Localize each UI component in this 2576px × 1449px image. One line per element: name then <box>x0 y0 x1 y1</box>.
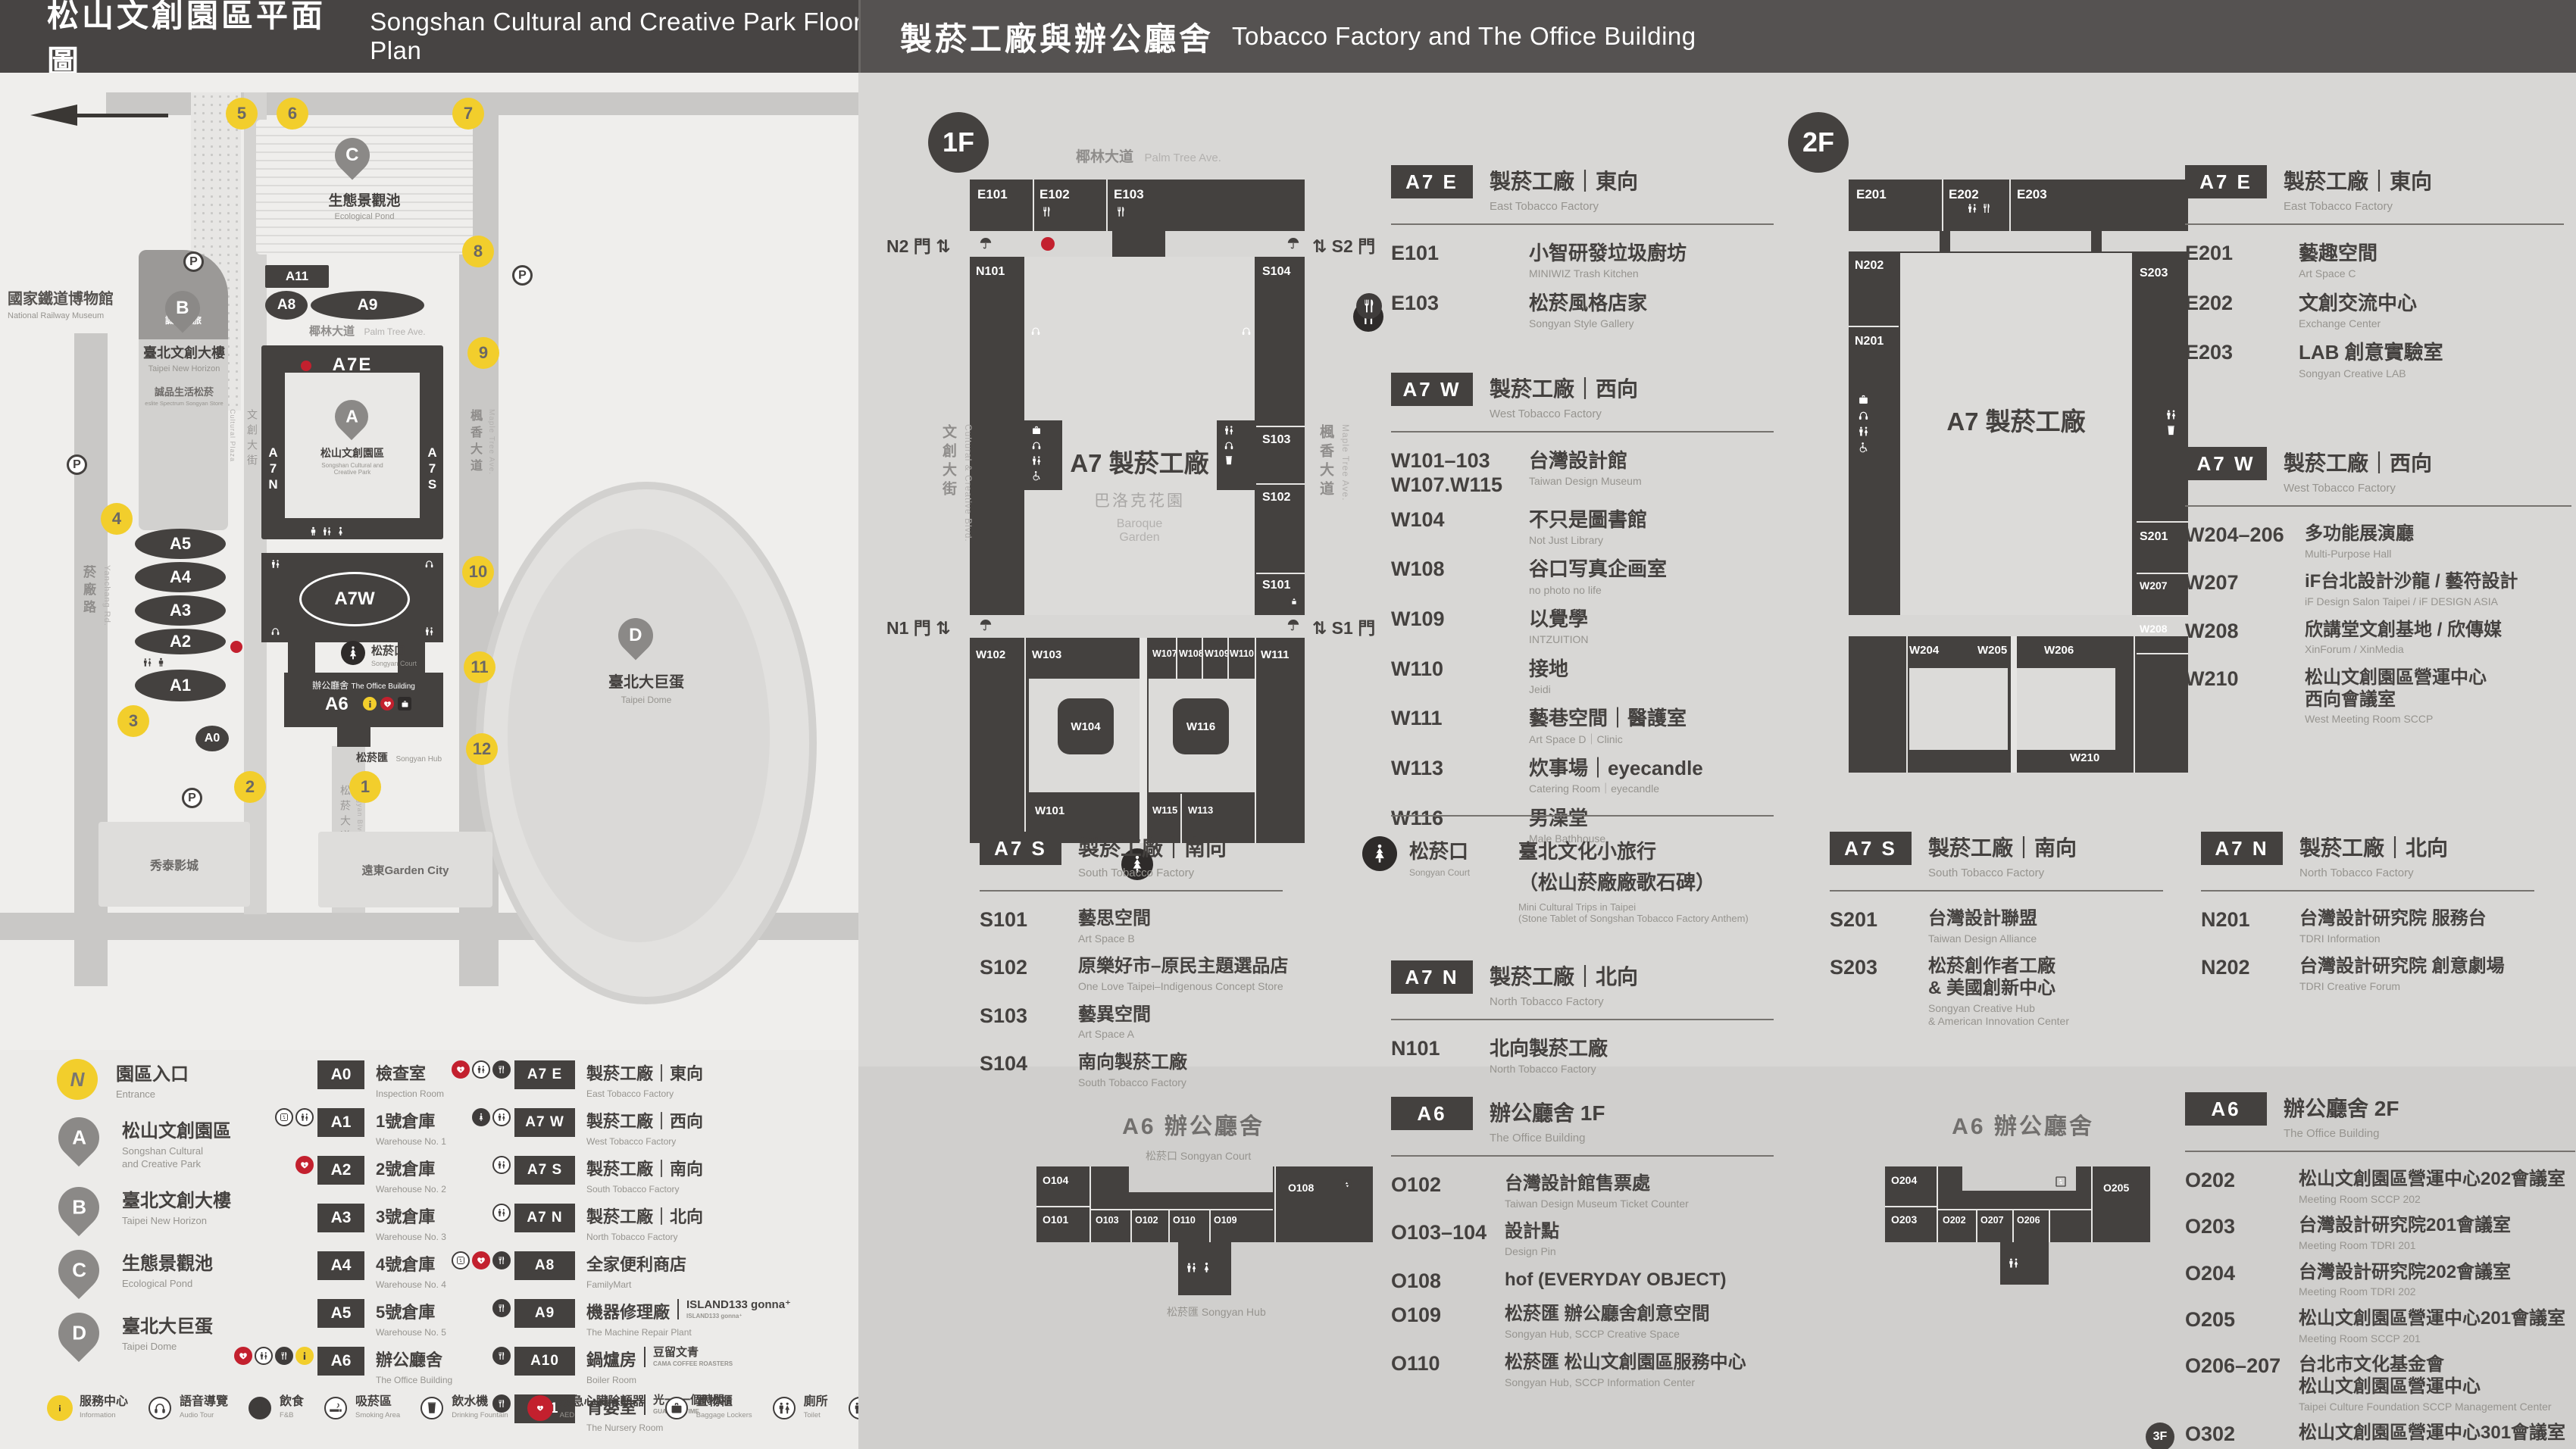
f2-east-icons <box>2165 409 2177 436</box>
f2-w207: W207 <box>2140 579 2168 592</box>
legend-row: A3 3號倉庫 Warehouse No. 3 <box>229 1204 456 1242</box>
f1-n101: N101 <box>976 265 1005 279</box>
fork-icon <box>249 1397 271 1419</box>
a6f1-hub-label: 松菸匯 Songyan Hub <box>1167 1304 1266 1319</box>
aed-icon <box>301 361 311 371</box>
room-row: E202 文創交流中心Exchange Center <box>2185 292 2564 331</box>
f2-n201: N201 <box>1855 335 1884 348</box>
gate-8: 8 <box>462 236 494 267</box>
fork-icon <box>492 1347 511 1365</box>
gate-4: 4 <box>101 503 133 535</box>
section-badge: A6 <box>1391 1097 1473 1130</box>
a6f2-o206: O206 <box>2017 1215 2040 1226</box>
f1-w108: W108 <box>1179 648 1204 659</box>
section-a6-2f: A6 辦公廳舍 2FThe Office Building O202 松山文創園… <box>2185 1092 2575 1449</box>
room-row: S104 南向製菸工廠South Tobacco Factory <box>980 1052 1370 1089</box>
parking-icon: P <box>183 251 204 272</box>
building-a9: A9 <box>311 291 424 320</box>
parking-icon: P <box>182 788 202 808</box>
building-a3: A3 <box>135 595 226 626</box>
room-row: W109 以覺學INTZUITION <box>1391 607 1774 647</box>
legend-mark: B <box>50 1178 108 1235</box>
section-1f-court: 松菸口 Songyan Court 臺北文化小旅行 （松山菸廠廠歌石碑） Min… <box>1362 804 1787 924</box>
section-badge: A7 N <box>1391 960 1473 994</box>
legend-row: A7 W 製菸工廠｜西向 West Tobacco Factory <box>453 1108 855 1147</box>
section-2f-a7s: A7 S 製菸工廠｜南向South Tobacco Factory S201 台… <box>1830 832 2193 1039</box>
building-a0: A0 <box>195 726 229 751</box>
f2-e202: E202 <box>1949 187 1979 202</box>
room-row: S102 原樂好市–原民主題選品店One Love Taipei–Indigen… <box>980 956 1370 993</box>
hub-label: 松菸匯 Songyan Hub <box>356 750 442 765</box>
fork-icon <box>275 1347 293 1365</box>
aed-icon <box>234 1347 252 1365</box>
f1-s101: S101 <box>1262 579 1290 592</box>
room-row: O206–207 台北市文化基金會松山文創園區營運中心Taipei Cultur… <box>2185 1354 2575 1413</box>
room-row: N101 北向製菸工廠North Tobacco Factory <box>1391 1037 1774 1076</box>
umbrella-icon <box>979 618 993 632</box>
f2-w-court1 <box>1909 668 2008 750</box>
section-2f-a7w: A7 W 製菸工廠｜西向West Tobacco Factory W204–20… <box>2185 447 2571 737</box>
showtimes-label: 秀泰影城 <box>98 855 250 873</box>
legend-pin-row: B 臺北文創大樓 Taipei New Horizon <box>57 1185 231 1234</box>
facility-item: 飲食 F&B <box>247 1395 304 1421</box>
a6f1-court-label: 松菸口 Songyan Court <box>1146 1148 1251 1163</box>
a6f2-o205: O205 <box>2103 1182 2129 1194</box>
f2-w206: W206 <box>2044 644 2074 657</box>
aed-icon <box>295 1156 314 1174</box>
section-badge: A7 S <box>1830 832 1912 865</box>
taipei-dome: D 臺北大巨蛋 Taipei Dome <box>476 482 817 1004</box>
a6f2-o202: O202 <box>1943 1215 1966 1226</box>
f1-w103: W103 <box>1032 648 1061 661</box>
room-row: W204–206 多功能展演廳Multi-Purpose Hall <box>2185 523 2571 561</box>
room-row: E201 藝趣空間Art Space C <box>2185 242 2564 281</box>
section-1f-a7e: A7 E 製菸工廠｜東向East Tobacco Factory E101 小智… <box>1391 165 1774 341</box>
pin-a: A <box>328 393 375 440</box>
room-row: 3F O302 松山文創園區營運中心301會議室Meeting Room SCC… <box>2185 1422 2575 1449</box>
page-title-right-zh: 製菸工廠與辦公廳舍 <box>900 14 1214 60</box>
audio-icon <box>1241 326 1252 336</box>
legend-pin-row: D 臺北大巨蛋 Taipei Dome <box>57 1311 231 1360</box>
floor-plan-poster: 松山文創園區平面圖 Songshan Cultural and Creative… <box>0 0 2576 1449</box>
f2-n202: N202 <box>1855 259 1884 273</box>
section-2f-a7n: A7 N 製菸工廠｜北向North Tobacco Factory N201 台… <box>2201 832 2572 1004</box>
a6f1-o110: O110 <box>1173 1215 1196 1226</box>
elevator-icon <box>2055 1176 2067 1188</box>
legend-mark: A <box>50 1109 108 1166</box>
facility-item: 服務中心 Information <box>47 1395 128 1421</box>
legend-pin-row: C 生態景觀池 Ecological Pond <box>57 1248 231 1297</box>
gate-s2-label: ⇅ S2 門 <box>1312 232 1375 258</box>
section-badge: A7 N <box>2201 832 2283 865</box>
audio-icon <box>148 1397 171 1419</box>
room-row: O109 松菸匯 辦公廳舍創意空間Songyan Hub, SCCP Creat… <box>1391 1304 1774 1341</box>
gate-12: 12 <box>466 733 498 765</box>
building-a11: A11 <box>265 265 329 288</box>
ecological-pond: C 生態景觀池 Ecological Pond <box>256 120 473 255</box>
yanchang-rd-label: 菸廠路 Yanchang Rd. <box>79 565 111 626</box>
legend-row: A7 N 製菸工廠｜北向 North Tobacco Factory <box>453 1204 855 1242</box>
brand-box: 豆留文青 CAMA COFFEE ROASTERS <box>644 1347 733 1367</box>
a6f1-entry <box>1178 1242 1231 1295</box>
f1-w102: W102 <box>976 648 1005 661</box>
a6f2-o203: O203 <box>1891 1213 1917 1226</box>
page-title-right-en: Tobacco Factory and The Office Building <box>1232 22 1696 51</box>
facility-item: 飲水機 Drinking Fountain <box>419 1395 508 1421</box>
umbrella-icon <box>1286 236 1300 250</box>
page-title-left-zh: 松山文創園區平面圖 <box>47 0 352 83</box>
park-label-zh: 松山文創園區 <box>285 445 420 461</box>
pair-icon <box>492 1156 511 1174</box>
f1-s102: S102 <box>1262 491 1290 504</box>
f2-e201: E201 <box>1856 187 1887 202</box>
room-row: W101–103W107.W115 台灣設計館Taiwan Design Mus… <box>1391 449 1774 498</box>
header-right: 製菸工廠與辦公廳舍 Tobacco Factory and The Office… <box>858 0 2576 73</box>
room-row: O102 台灣設計館售票處Taiwan Design Museum Ticket… <box>1391 1173 1774 1210</box>
umbrella-icon <box>979 236 993 250</box>
facility-item: 廁所 Toilet <box>771 1395 828 1421</box>
f2-center-label: A7 製菸工廠 <box>1900 401 2132 438</box>
legend-row: A7 E 製菸工廠｜東向 East Tobacco Factory <box>453 1060 855 1099</box>
room-row: O203 台灣設計研究院201會議室Meeting Room TDRI 201 <box>2185 1215 2575 1252</box>
legend-mark: C <box>50 1241 108 1298</box>
f1-w107: W107 <box>1152 648 1177 659</box>
f1-right-road-label: 楓香大道 Maple Tree Ave. <box>1315 424 1351 501</box>
a6-label: A6 <box>325 694 349 715</box>
pond-label-en: Ecological Pond <box>256 212 473 221</box>
building-a4: A4 <box>135 562 226 592</box>
elevator-icon <box>1288 595 1300 607</box>
gardencity-label: 遠東Garden City <box>318 862 492 878</box>
legend-pin-row: N 園區入口 Entrance <box>57 1059 231 1101</box>
legend-row: A5 5號倉庫 Warehouse No. 5 <box>229 1299 456 1338</box>
room-row: W104 不只是圖書館Not Just Library <box>1391 508 1774 548</box>
gate-1: 1 <box>349 771 381 803</box>
a6f1-o101: O101 <box>1043 1213 1068 1226</box>
court-label: 松菸口 Songyan Court <box>371 642 417 667</box>
aed-icon <box>1041 237 1055 251</box>
f1-s103: S103 <box>1262 433 1290 447</box>
gate-3: 3 <box>117 705 149 737</box>
building-a1: A1 <box>135 670 226 701</box>
aed-icon <box>472 1251 490 1269</box>
room-row: O110 松菸匯 松山文創園區服務中心Songyan Hub, SCCP Inf… <box>1391 1352 1774 1389</box>
a6f2-o204: O204 <box>1891 1174 1917 1186</box>
legend-row: A4 4號倉庫 Warehouse No. 4 <box>229 1251 456 1290</box>
fork-icon <box>492 1060 511 1079</box>
f2-west-icons <box>1858 394 1869 453</box>
room-row: W207 iF台北設計沙龍 / 藝符設計iF Design Salon Taip… <box>2185 571 2571 608</box>
section-badge: A7 E <box>2185 165 2267 198</box>
fork-icon <box>492 1251 511 1269</box>
a6f1-o102: O102 <box>1135 1215 1158 1226</box>
legend-row: A6 辦公廳舍 The Office Building <box>229 1347 456 1385</box>
legend-row: A7 S 製菸工廠｜南向 South Tobacco Factory <box>453 1156 855 1194</box>
gate-6: 6 <box>277 98 308 130</box>
tree-icon <box>472 1108 490 1126</box>
legend-row: A10 鍋爐房 豆留文青 CAMA COFFEE ROASTERS Boiler… <box>453 1347 855 1385</box>
lift-icon <box>275 1108 293 1126</box>
restroom-cluster <box>308 526 345 536</box>
section-a6-1f: A6 辦公廳舍 1FThe Office Building O102 台灣設計館… <box>1391 1097 1774 1400</box>
header-left: 松山文創園區平面圖 Songshan Cultural and Creative… <box>0 0 905 73</box>
legend-pin-row: A 松山文創園區 Songshan Cultural and Creative … <box>57 1116 231 1171</box>
pair-icon <box>255 1347 273 1365</box>
f1-w111: W111 <box>1261 648 1290 661</box>
room-row: S103 藝異空間Art Space A <box>980 1004 1370 1041</box>
f1-left-road-label: 文創大街 Cultural & Creative Blvd. <box>938 424 974 542</box>
a6f1-o108: O108 <box>1288 1182 1314 1194</box>
f1-w109: W109 <box>1205 648 1230 659</box>
brand-box: ISLAND133 gonna⁺ ISLAND133 gonna⁺ <box>677 1299 791 1319</box>
legend-row: A2 2號倉庫 Warehouse No. 2 <box>229 1156 456 1194</box>
pin-c: C <box>327 130 377 180</box>
section-badge: A7 S <box>980 832 1061 865</box>
audio-icon <box>1030 326 1041 336</box>
f1-street-label: 椰林大道 Palm Tree Ave. <box>1076 145 1221 166</box>
gardencity-block: 遠東Garden City <box>318 832 492 907</box>
f1-w115: W115 <box>1152 804 1177 816</box>
f1-w113: W113 <box>1188 804 1213 816</box>
room-row: O205 松山文創園區營運中心201會議室Meeting Room SCCP 2… <box>2185 1308 2575 1345</box>
elevator-icon <box>1341 1179 1353 1191</box>
room-row: O202 松山文創園區營運中心202會議室Meeting Room SCCP 2… <box>2185 1169 2575 1206</box>
room-row: W113 炊事場｜eyecandleCatering Room｜eyecandl… <box>1391 757 1774 796</box>
f1-e103: E103 <box>1114 187 1144 202</box>
building-a2: A2 <box>135 629 226 654</box>
legend-row: A9 機器修理廠 ISLAND133 gonna⁺ ISLAND133 gonn… <box>453 1299 855 1338</box>
gate-11: 11 <box>464 651 496 683</box>
gate-n2-label: N2 門 ⇅ <box>886 232 950 258</box>
facility-item: 吸菸區 Smoking Area <box>323 1395 400 1421</box>
section-1f-a7n: A7 N 製菸工廠｜北向North Tobacco Factory N101 北… <box>1391 960 1774 1087</box>
aed-icon <box>380 697 394 710</box>
a7s-label: A7S <box>424 445 439 493</box>
songyan-court-icon <box>341 641 365 665</box>
railway-museum-label: 國家鐵道博物館 National Railway Museum <box>8 286 114 320</box>
f1-w104: W104 <box>1058 698 1114 754</box>
parking-icon: P <box>67 454 87 475</box>
room-row: W208 欣講堂文創基地 / 欣傳媒XinForum / XinMedia <box>2185 620 2571 657</box>
legend-row: A1 1號倉庫 Warehouse No. 1 <box>229 1108 456 1147</box>
gate-10: 10 <box>462 556 494 588</box>
room-row: W111 藝巷空間｜醫護室Art Space D｜Clinic <box>1391 707 1774 746</box>
room-row: E101 小智研發垃圾廚坊MINIWIZ Trash Kitchen <box>1391 242 1774 281</box>
info-icon <box>52 1400 68 1416</box>
court-connector <box>288 642 315 673</box>
f1-w110: W110 <box>1230 648 1254 659</box>
dome-label-zh: 臺北大巨蛋 <box>483 670 809 692</box>
facility-item: 置物櫃 Baggage Lockers <box>664 1395 752 1421</box>
f1-e102: E102 <box>1039 187 1070 202</box>
room-row: W210 松山文創園區營運中心西向會議室West Meeting Room SC… <box>2185 667 2571 726</box>
dome-label-en: Taipei Dome <box>483 695 809 705</box>
f1-w116: W116 <box>1173 698 1229 754</box>
legend-mark: N <box>57 1059 98 1100</box>
legend-group-b: A7 E 製菸工廠｜東向 East Tobacco Factory A7 W 製… <box>453 1060 855 1442</box>
pair-icon <box>492 1204 511 1222</box>
building-a5: A5 <box>135 529 226 559</box>
umbrella-icon <box>1286 618 1300 632</box>
aed-icon <box>230 641 242 653</box>
f2-w208: W208 <box>2140 623 2168 635</box>
f2-e203: E203 <box>2017 187 2047 202</box>
a6f1-plan-title: A6 辦公廳舍 <box>1064 1107 1322 1141</box>
room-row: S101 藝思空間Art Space B <box>980 908 1370 945</box>
building-a7w: A7W <box>261 553 443 642</box>
gate-2: 2 <box>234 771 266 803</box>
room-row: E203 LAB 創意實驗室Songyan Creative LAB <box>2185 341 2564 380</box>
room-row: W108 谷口写真企画室no photo no life <box>1391 557 1774 597</box>
f2-s203: S203 <box>2140 267 2168 280</box>
a7e-courtyard: A 松山文創園區 Songshan Cultural and Creative … <box>285 373 420 518</box>
compass-north-icon <box>30 105 168 126</box>
building-a7e: A7E A 松山文創園區 Songshan Cultural and Creat… <box>261 345 443 539</box>
smoke-icon <box>324 1397 347 1419</box>
a7n-label: A7N <box>265 445 280 493</box>
parking-icon: P <box>512 265 533 286</box>
cup-icon <box>420 1397 443 1419</box>
room-row: W110 接地Jeidi <box>1391 657 1774 697</box>
dome-inner <box>508 529 770 942</box>
gate-9: 9 <box>467 337 499 369</box>
f2-w204: W204 <box>1909 644 1939 657</box>
room-row: N201 台灣設計研究院 服務台TDRI Information <box>2201 908 2572 945</box>
facility-item: 緊急心臟除顫器 AED <box>527 1395 645 1421</box>
a6f2-o207: O207 <box>1980 1215 2004 1226</box>
restaurant-icon <box>1041 206 1052 217</box>
a6f1-o103: O103 <box>1096 1215 1119 1226</box>
showtimes-block: 秀泰影城 <box>98 822 250 907</box>
section-badge: A7 W <box>2185 447 2267 480</box>
a6f2-plan-title: A6 辦公廳舍 <box>1894 1107 2152 1141</box>
locker-icon <box>398 697 411 710</box>
section-1f-a7w: A7 W 製菸工廠｜西向West Tobacco Factory W101–10… <box>1391 373 1774 857</box>
page-title-left-en: Songshan Cultural and Creative Park Floo… <box>370 8 905 65</box>
floor-badge-2f: 2F <box>1788 112 1849 173</box>
legend-mark: D <box>50 1304 108 1361</box>
aed-icon <box>532 1400 549 1416</box>
section-badge: A6 <box>2185 1092 2267 1126</box>
info-icon <box>295 1347 314 1365</box>
pair-icon <box>492 1108 511 1126</box>
park-map: 國家鐵道博物館 National Railway Museum 菸廠路 Yanc… <box>0 73 858 1050</box>
gate-7: 7 <box>452 98 484 130</box>
building-a8: A8 <box>265 291 308 320</box>
maple-ave-label: 楓香大道 Maple Tree Ave. <box>465 409 496 476</box>
new-horizon-label: 臺北文創大樓 Taipei New Horizon 誠品生活松菸 eslite … <box>141 342 227 407</box>
restaurant-icon <box>1115 206 1127 217</box>
pair-icon <box>295 1108 314 1126</box>
a7w-label: A7W <box>299 572 410 626</box>
f1-e101: E101 <box>977 187 1008 202</box>
legend-row: A0 檢查室 Inspection Room <box>229 1060 456 1099</box>
pair-icon <box>773 1397 796 1419</box>
aed-icon <box>452 1060 470 1079</box>
section-2f-a7e: A7 E 製菸工廠｜東向East Tobacco Factory E201 藝趣… <box>2185 165 2564 391</box>
f1-west-icons <box>1024 420 1062 490</box>
gate-5: 5 <box>226 98 258 130</box>
legend-row: A8 全家便利商店 FamilyMart <box>453 1251 855 1290</box>
legend-pins: N 園區入口 Entrance A 松山文創園區 Songshan Cultur… <box>57 1059 231 1374</box>
gate-n1-label: N1 門 ⇅ <box>886 614 950 639</box>
warehouse-icons <box>142 657 166 667</box>
floor-3f-badge: 3F <box>2146 1422 2174 1449</box>
f1-s104: S104 <box>1262 265 1290 279</box>
f2-top-icons <box>1967 203 1992 214</box>
a6f1-o104: O104 <box>1043 1174 1068 1186</box>
f2-s201: S201 <box>2140 530 2168 544</box>
facility-item: 語音導覽 Audio Tour <box>147 1395 228 1421</box>
lift-icon <box>452 1251 470 1269</box>
pond-label-zh: 生態景觀池 <box>256 189 473 210</box>
fork-icon <box>492 1299 511 1317</box>
floor-badge-1f: 1F <box>928 112 989 173</box>
a6-entry <box>337 727 370 747</box>
f2-courtyard: A7 製菸工廠 <box>1900 253 2132 615</box>
room-row: S203 松菸創作者工廠& 美國創新中心Songyan Creative Hub… <box>1830 956 2193 1029</box>
room-row: S201 台灣設計聯盟Taiwan Design Alliance <box>1830 908 2193 945</box>
f2-w-court2 <box>2017 668 2115 750</box>
pair-icon <box>472 1060 490 1079</box>
room-row: O108 hof (EVERYDAY OBJECT) <box>1391 1269 1774 1294</box>
palm-ave-label: 椰林大道 Palm Tree Ave. <box>309 323 426 339</box>
f1-w101: W101 <box>1035 804 1064 817</box>
building-a6: 辦公廳舍 The Office Building A6 <box>284 673 443 727</box>
songyan-court-icon <box>1362 836 1397 871</box>
f1-east-icons <box>1217 420 1255 490</box>
legend-group-a: A0 檢查室 Inspection Room A1 1號倉庫 Warehouse… <box>229 1060 456 1394</box>
room-row: N202 台灣設計研究院 創意劇場TDRI Creative Forum <box>2201 956 2572 993</box>
info-icon <box>363 697 377 710</box>
section-badge: A7 W <box>1391 373 1473 406</box>
case-icon <box>665 1397 688 1419</box>
gate-s1-label: ⇅ S1 門 <box>1312 614 1375 639</box>
room-row: O103–104 設計點Design Pin <box>1391 1221 1774 1258</box>
a6f2-entry <box>2000 1242 2049 1285</box>
f2-w210: W210 <box>2070 751 2099 764</box>
section-1f-a7s: A7 S 製菸工廠｜南向South Tobacco Factory S101 藝… <box>980 832 1370 1100</box>
a6f1-o109: O109 <box>1214 1215 1237 1226</box>
f2-w205: W205 <box>1977 644 2007 657</box>
room-row: O204 台灣設計研究院202會議室Meeting Room TDRI 202 <box>2185 1262 2575 1299</box>
room-row: E103 松菸風格店家Songyan Style Gallery <box>1391 292 1774 331</box>
section-badge: A7 E <box>1391 165 1473 198</box>
restaurant-icon <box>1356 293 1382 319</box>
